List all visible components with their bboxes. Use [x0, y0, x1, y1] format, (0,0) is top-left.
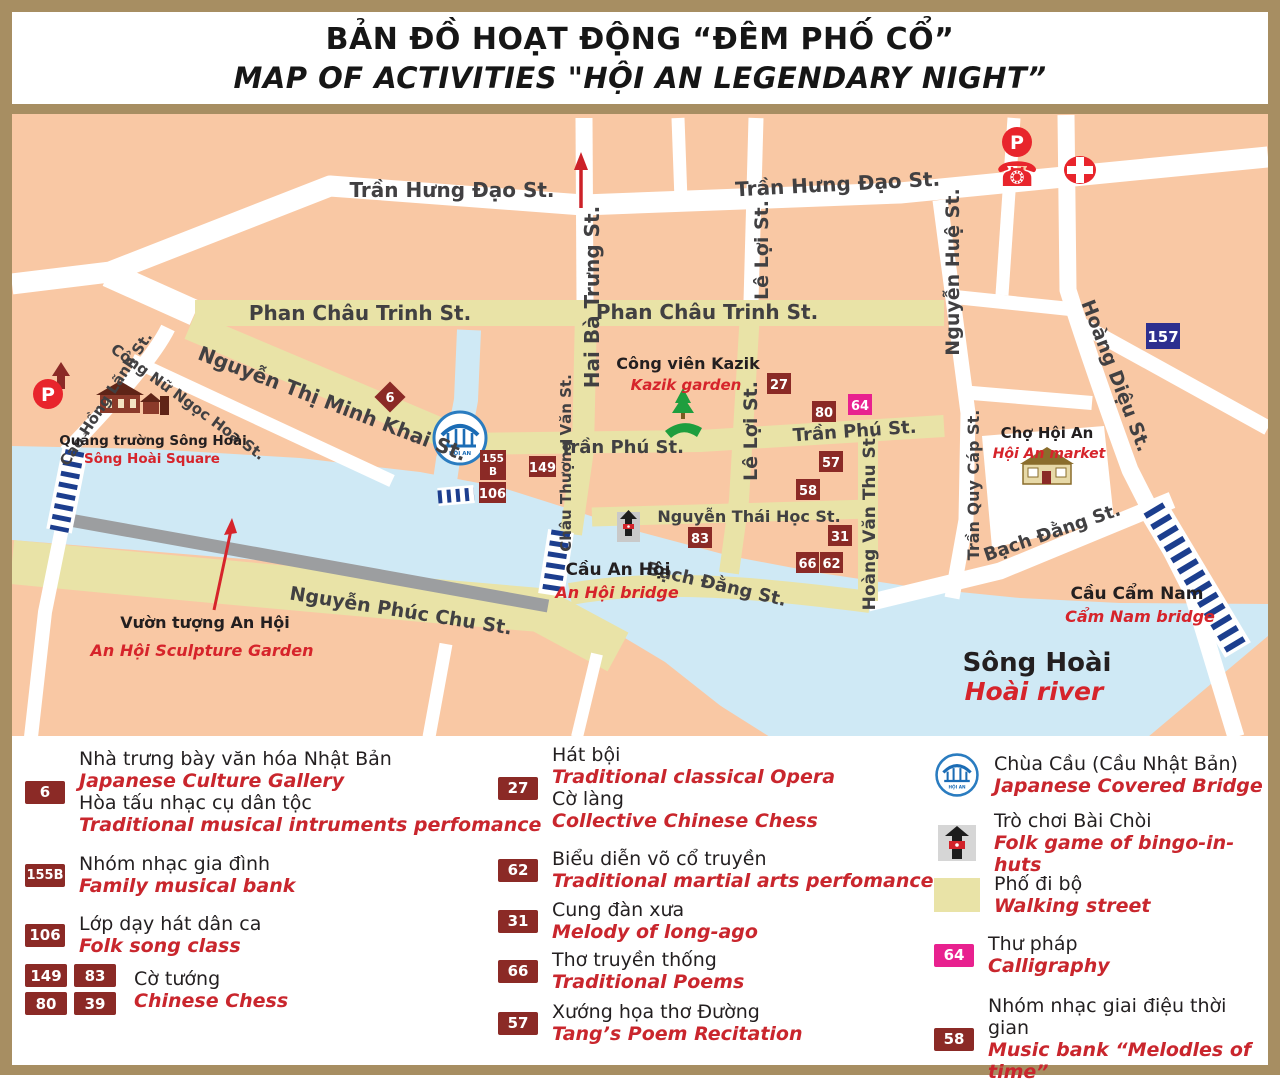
legend-text: Traditional musical intruments perfomanc…: [79, 814, 541, 836]
legend-text: Calligraphy: [988, 955, 1110, 977]
legend-text: Thư pháp: [988, 933, 1110, 955]
label-an-hoi-bridge-vi: Cầu An Hội: [566, 559, 671, 580]
map-marker-62: 62: [820, 552, 843, 573]
telephone-icon: ☎: [996, 155, 1038, 195]
map-marker-80: 80: [812, 401, 836, 422]
legend-item-melody: 31 Cung đàn xưa Melody of long-ago: [498, 899, 758, 943]
map-marker-149: 149: [529, 456, 556, 477]
label-cam-nam-bridge-vi: Cầu Cẩm Nam: [1071, 582, 1204, 604]
label-river-vi: Sông Hoài: [963, 648, 1112, 678]
legend-item-family-band: 155B Nhóm nhạc gia đình Family musical b…: [25, 853, 295, 897]
legend-text: Trò chơi Bài Chòi: [994, 810, 1268, 832]
label-river-en: Hoài river: [965, 677, 1105, 706]
street-label-tran-hung-dao-west: Trần Hưng Đạo St.: [349, 178, 554, 202]
map-marker-66: 66: [796, 552, 819, 573]
street-label-phan-chau-trinh-west: Phan Châu Trinh St.: [249, 301, 471, 325]
legend-text: Lớp dạy hát dân ca: [79, 913, 261, 935]
label-sculpture-garden-vi: Vườn tượng An Hội: [120, 613, 289, 632]
legend-badge-64: 64: [934, 944, 974, 967]
street-label-tran-phu-west: Trần Phú St.: [560, 437, 684, 458]
legend-text: Folk game of bingo-in-huts: [994, 832, 1268, 876]
legend-text: Cung đàn xưa: [552, 899, 758, 921]
marker-64-label: 64: [851, 399, 869, 414]
legend-item-calligraphy: 64 Thư pháp Calligraphy: [934, 933, 1110, 977]
marker-57-label: 57: [822, 456, 840, 471]
legend-text: Walking street: [994, 895, 1151, 917]
marker-6-label: 6: [385, 391, 394, 406]
legend-text: Japanese Culture Gallery: [79, 770, 541, 792]
legend-badge-155b: 155B: [25, 864, 65, 887]
map-marker-31: 31: [828, 525, 852, 546]
map-marker-157: 157: [1146, 323, 1180, 349]
legend-text: Traditional martial arts perfomance: [552, 870, 934, 892]
map-marker-27: 27: [767, 373, 791, 394]
legend-badge-6: 6: [25, 781, 65, 804]
label-market-en: Hội An market: [993, 446, 1107, 462]
legend-item-bai-choi: Trò chơi Bài Chòi Folk game of bingo-in-…: [934, 810, 1268, 876]
marker-27-label: 27: [770, 378, 788, 393]
legend-item-tang-poem: 57 Xướng họa thơ Đường Tang’s Poem Recit…: [498, 1001, 803, 1045]
street-label-chau-thuong-van: Châu Thượng Văn St.: [557, 374, 575, 552]
label-an-hoi-bridge-en: An Hội bridge: [553, 583, 679, 602]
legend-text: Xướng họa thơ Đường: [552, 1001, 803, 1023]
map-marker-106: 106: [479, 482, 506, 503]
street-label-le-loi-south: Lê Lợi St.: [740, 381, 762, 481]
legend-text: Phố đi bộ: [994, 873, 1151, 895]
marker-83-label: 83: [691, 532, 709, 547]
map-marker-83: 83: [688, 527, 712, 548]
legend-text: Hòa tấu nhạc cụ dân tộc: [79, 792, 541, 814]
label-sculpture-garden-en: An Hội Sculpture Garden: [89, 641, 314, 660]
legend-text: Melody of long-ago: [552, 921, 758, 943]
label-market-vi: Chợ Hội An: [1001, 424, 1094, 442]
marker-157-label: 157: [1147, 328, 1178, 346]
legend-text: Folk song class: [79, 935, 261, 957]
legend-text: Chinese Chess: [134, 990, 288, 1012]
legend-text: Family musical bank: [79, 875, 295, 897]
marker-155b-bottom: B: [489, 466, 497, 478]
legend-badge-80: 80: [25, 992, 67, 1015]
marker-149-label: 149: [529, 461, 556, 476]
street-label-tran-quy-cap: Trần Quy Cáp St.: [964, 410, 983, 561]
legend-text: Japanese Covered Bridge: [994, 775, 1263, 797]
legend-text: Tang’s Poem Recitation: [552, 1023, 803, 1045]
legend-badge-66: 66: [498, 960, 538, 983]
parking-letter: P: [41, 384, 55, 406]
legend: 6 Nhà trưng bày văn hóa Nhật Bản Japanes…: [12, 736, 1268, 1065]
legend-text: Nhóm nhạc gia đình: [79, 853, 295, 875]
walking-street-swatch: [934, 878, 980, 912]
legend-badge-106: 106: [25, 924, 65, 947]
legend-badge-83: 83: [74, 964, 116, 987]
marker-66-label: 66: [798, 557, 816, 572]
legend-text: Hát bội: [552, 744, 835, 766]
japanese-bridge-icon: HỘI AN: [934, 752, 980, 798]
legend-text: Chùa Cầu (Cầu Nhật Bản): [994, 753, 1263, 775]
legend-badge-27: 27: [498, 777, 538, 800]
street-label-phan-chau-trinh-east: Phan Châu Trinh St.: [596, 300, 818, 324]
legend-text: Traditional Poems: [552, 971, 744, 993]
label-song-hoai-square-vi: Quảng trường Sông Hoài: [59, 433, 246, 449]
parking-letter: P: [1010, 132, 1024, 154]
label-kazik-vi: Công viên Kazik: [616, 354, 760, 373]
legend-item-chinese-chess: 149 83 80 39 Cờ tướng Chinese Chess: [25, 964, 288, 1015]
street-label-hai-ba-trung: Hai Bà Trưng St.: [580, 206, 604, 388]
map-marker-64: 64: [848, 394, 872, 415]
page-title-vietnamese: BẢN ĐỒ HOẠT ĐỘNG “ĐÊM PHỐ CỔ”: [326, 22, 955, 57]
street-label-nguyen-hue: Nguyễn Huệ St.: [940, 188, 964, 355]
bai-choi-hut-icon: [937, 824, 977, 862]
street-label-le-loi-north: Lê Lợi St.: [751, 200, 773, 300]
marker-80-label: 80: [815, 406, 833, 421]
legend-item-opera: 27 Hát bội Traditional classical Opera C…: [498, 744, 835, 832]
page-title-english: MAP OF ACTIVITIES "HỘI AN LEGENDARY NIGH…: [234, 61, 1047, 95]
legend-item-music-bank: 58 Nhóm nhạc giai điệu thời gian Music b…: [934, 995, 1268, 1083]
poster-frame: BẢN ĐỒ HOẠT ĐỘNG “ĐÊM PHỐ CỔ” MAP OF ACT…: [0, 0, 1280, 1075]
marker-31-label: 31: [831, 530, 849, 545]
map-canvas: HỘI AN: [12, 114, 1268, 736]
bai-choi-hut-icon: [617, 510, 640, 542]
legend-text: Traditional classical Opera: [552, 766, 835, 788]
legend-text: Cờ tướng: [134, 968, 288, 990]
legend-item-covered-bridge: HỘI AN Chùa Cầu (Cầu Nhật Bản) Japanese …: [934, 752, 1263, 798]
street-label-hoang-van-thu: Hoàng Văn Thu St.: [860, 432, 880, 611]
legend-item-walking-street: Phố đi bộ Walking street: [934, 873, 1151, 917]
label-song-hoai-square-en: Sông Hoài Square: [84, 451, 220, 467]
title-box: BẢN ĐỒ HOẠT ĐỘNG “ĐÊM PHỐ CỔ” MAP OF ACT…: [12, 12, 1268, 104]
legend-item-folk-song: 106 Lớp dạy hát dân ca Folk song class: [25, 913, 261, 957]
street-label-nguyen-thai-hoc: Nguyễn Thái Học St.: [657, 507, 840, 526]
marker-106-label: 106: [479, 487, 506, 502]
map-marker-58: 58: [796, 479, 820, 500]
label-cam-nam-bridge-en: Cẩm Nam bridge: [1065, 607, 1215, 626]
legend-badge-58: 58: [934, 1028, 974, 1051]
legend-text: Thơ truyền thống: [552, 949, 744, 971]
legend-item-poems: 66 Thơ truyền thống Traditional Poems: [498, 949, 744, 993]
marker-62-label: 62: [822, 557, 840, 572]
legend-text: Collective Chinese Chess: [552, 810, 835, 832]
legend-badge-149: 149: [25, 964, 67, 987]
legend-badge-39: 39: [74, 992, 116, 1015]
legend-text: Nhóm nhạc giai điệu thời gian: [988, 995, 1268, 1039]
marker-155b-top: 155: [482, 453, 504, 465]
street-minor-north: [678, 118, 681, 200]
map-marker-57: 57: [819, 451, 843, 472]
legend-text: Biểu diễn võ cổ truyền: [552, 848, 934, 870]
legend-text: Music bank “Melodles of time”: [988, 1039, 1268, 1083]
map-area: HỘI AN: [12, 114, 1268, 736]
legend-text: Cờ làng: [552, 788, 835, 810]
legend-badge-31: 31: [498, 910, 538, 933]
legend-badge-62: 62: [498, 859, 538, 882]
legend-text: Nhà trưng bày văn hóa Nhật Bản: [79, 748, 541, 770]
marker-58-label: 58: [799, 484, 817, 499]
legend-item-japanese-culture: 6 Nhà trưng bày văn hóa Nhật Bản Japanes…: [25, 748, 541, 836]
legend-item-martial-arts: 62 Biểu diễn võ cổ truyền Traditional ma…: [498, 848, 934, 892]
label-kazik-en: Kazik garden: [631, 376, 742, 394]
map-marker-155b: 155 B: [480, 450, 506, 480]
legend-badge-57: 57: [498, 1012, 538, 1035]
